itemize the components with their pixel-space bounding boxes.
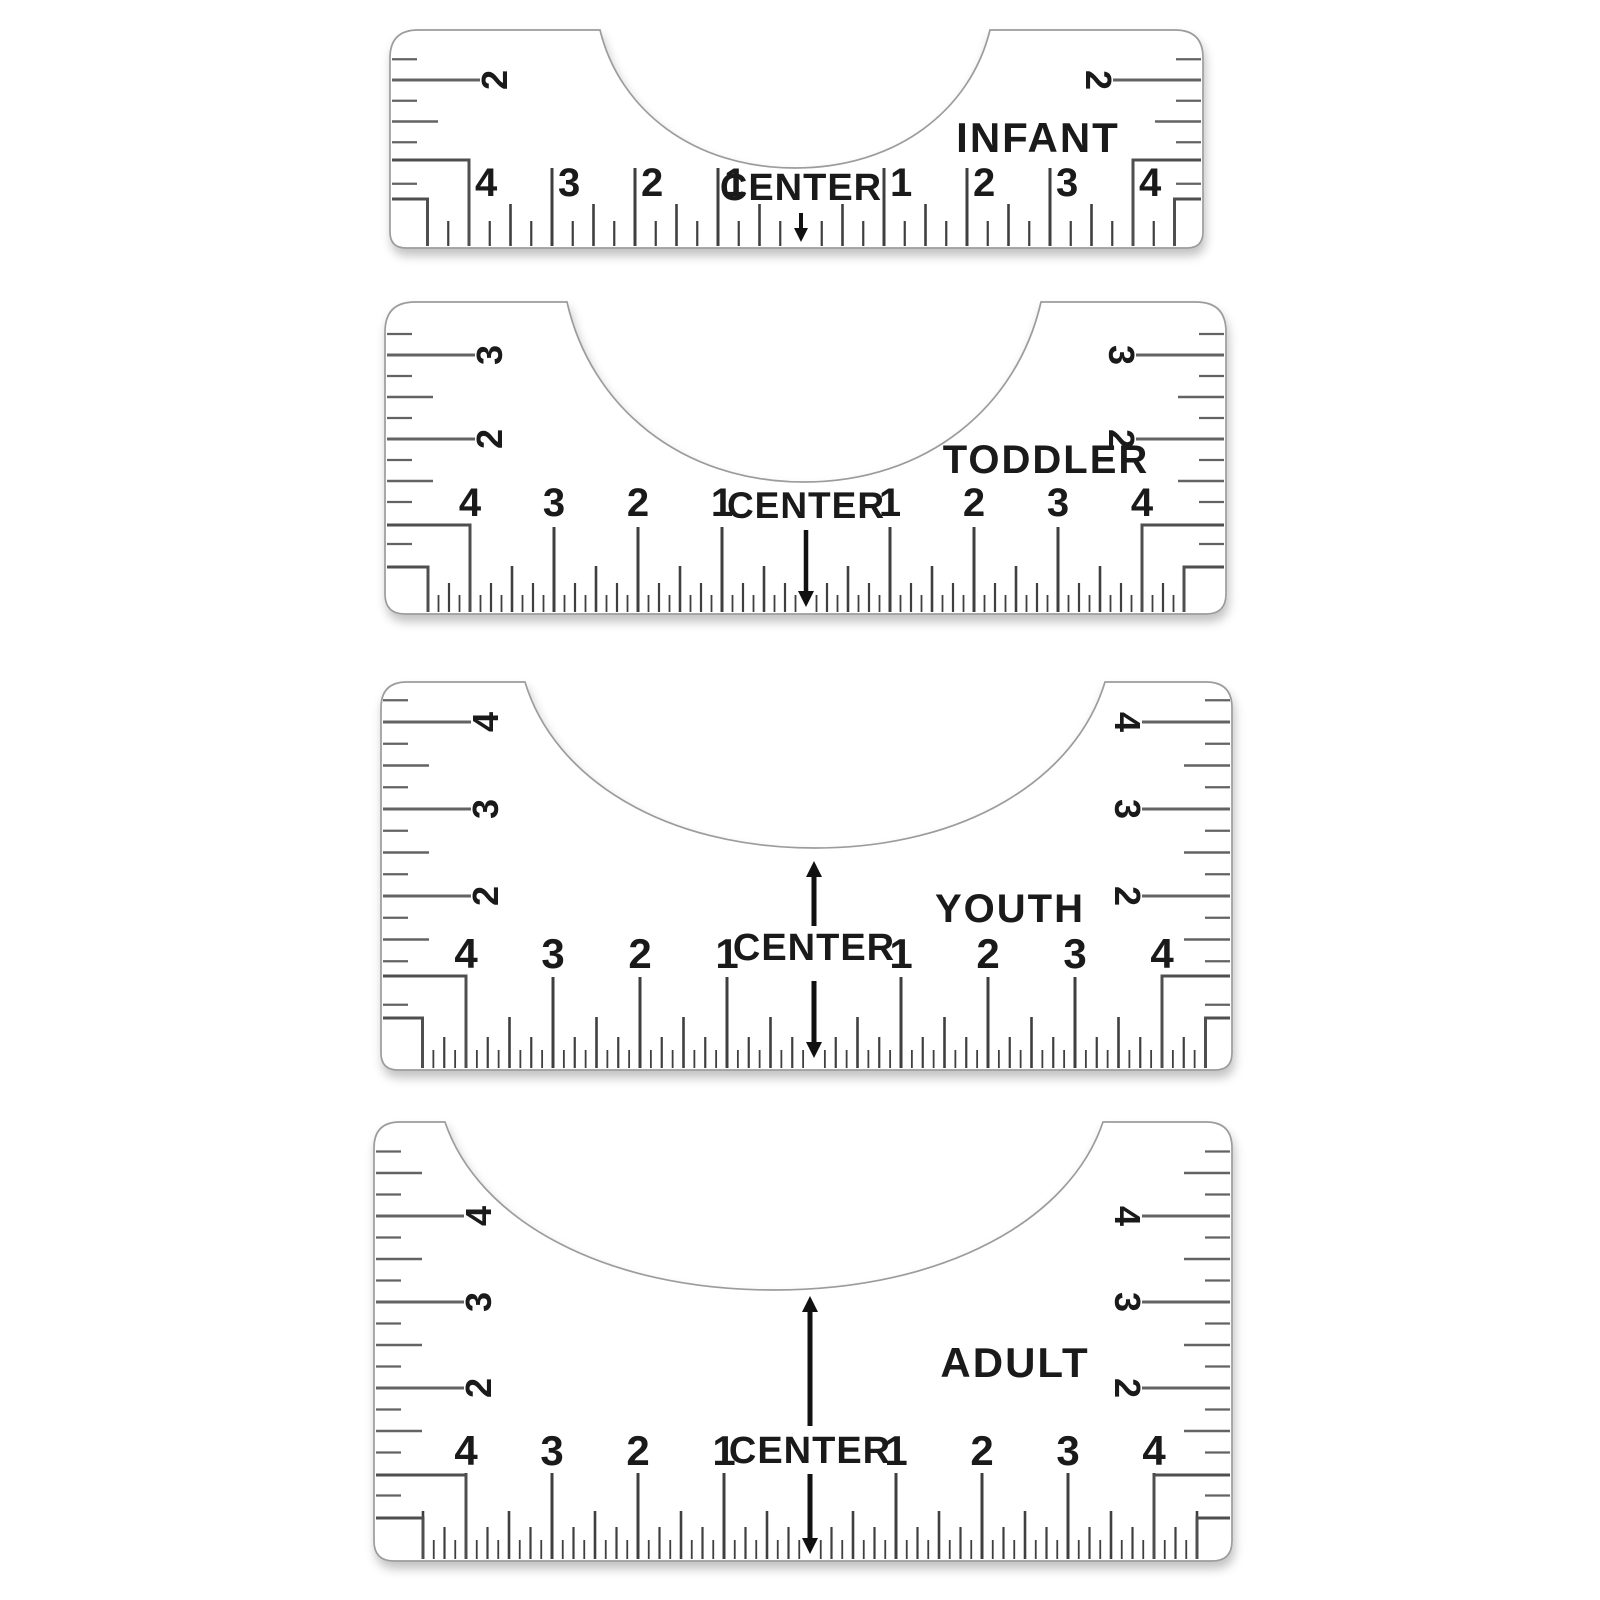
size-label: YOUTH bbox=[935, 887, 1085, 931]
side-scale-number: 2 bbox=[474, 70, 515, 90]
scale-number: 3 bbox=[541, 930, 564, 977]
scale-number: 3 bbox=[558, 161, 580, 205]
scale-number: 3 bbox=[540, 1427, 563, 1474]
ruler-outline bbox=[374, 1122, 1232, 1561]
scale-number: 4 bbox=[1131, 481, 1154, 525]
scale-number: 2 bbox=[963, 481, 985, 525]
side-scale-number: 2 bbox=[1078, 70, 1119, 90]
size-label: TODDLER bbox=[943, 438, 1150, 482]
scale-number: 3 bbox=[1056, 161, 1078, 205]
ruler-toddler: 43211234CENTER3232TODDLER bbox=[385, 302, 1226, 614]
scale-number: 4 bbox=[459, 481, 482, 525]
size-label: ADULT bbox=[940, 1339, 1089, 1386]
side-scale-number: 3 bbox=[1107, 1292, 1148, 1312]
side-scale-number: 3 bbox=[1101, 345, 1142, 365]
scale-number: 3 bbox=[1063, 930, 1086, 977]
side-scale-number: 3 bbox=[469, 345, 510, 365]
ruler-youth: 43211234CENTER432432YOUTH bbox=[381, 682, 1232, 1070]
scale-number: 3 bbox=[1056, 1427, 1079, 1474]
scale-number: 3 bbox=[1047, 481, 1069, 525]
scale-number: 2 bbox=[641, 161, 663, 205]
ruler-infant: 43211234CENTER22INFANT bbox=[390, 30, 1203, 248]
ruler-adult: 43211234CENTER432432ADULT bbox=[374, 1122, 1232, 1561]
scale-number: 2 bbox=[970, 1427, 993, 1474]
scale-number: 2 bbox=[628, 930, 651, 977]
center-label: CENTER bbox=[729, 1430, 891, 1472]
side-scale-number: 2 bbox=[1107, 886, 1148, 906]
side-scale-number: 3 bbox=[1107, 799, 1148, 819]
scale-number: 3 bbox=[543, 481, 565, 525]
scale-number: 2 bbox=[626, 1427, 649, 1474]
side-scale-number: 4 bbox=[458, 1206, 499, 1226]
side-scale-number: 4 bbox=[1107, 712, 1148, 732]
side-scale-number: 2 bbox=[1107, 1378, 1148, 1398]
center-label: CENTER bbox=[733, 927, 895, 969]
side-scale-number: 4 bbox=[1107, 1206, 1148, 1226]
tshirt-ruler-set-photo: 43211234CENTER22INFANT43211234CENTER3232… bbox=[0, 0, 1600, 1600]
scale-number: 4 bbox=[454, 1427, 478, 1474]
side-scale-number: 3 bbox=[465, 799, 506, 819]
side-scale-number: 2 bbox=[465, 886, 506, 906]
scale-number: 4 bbox=[1139, 161, 1162, 205]
scale-number: 4 bbox=[454, 930, 478, 977]
rulers-canvas: 43211234CENTER22INFANT43211234CENTER3232… bbox=[0, 0, 1600, 1600]
size-label: INFANT bbox=[956, 114, 1120, 161]
scale-number: 2 bbox=[627, 481, 649, 525]
side-scale-number: 4 bbox=[465, 712, 506, 732]
center-label: CENTER bbox=[720, 167, 882, 209]
scale-number: 4 bbox=[475, 161, 498, 205]
side-scale-number: 3 bbox=[458, 1292, 499, 1312]
scale-number: 2 bbox=[973, 161, 995, 205]
scale-number: 2 bbox=[976, 930, 999, 977]
scale-number: 4 bbox=[1142, 1427, 1166, 1474]
side-scale-number: 2 bbox=[469, 429, 510, 449]
scale-number: 4 bbox=[1150, 930, 1174, 977]
scale-number: 1 bbox=[890, 161, 912, 205]
center-label: CENTER bbox=[727, 485, 885, 526]
side-scale-number: 2 bbox=[458, 1378, 499, 1398]
